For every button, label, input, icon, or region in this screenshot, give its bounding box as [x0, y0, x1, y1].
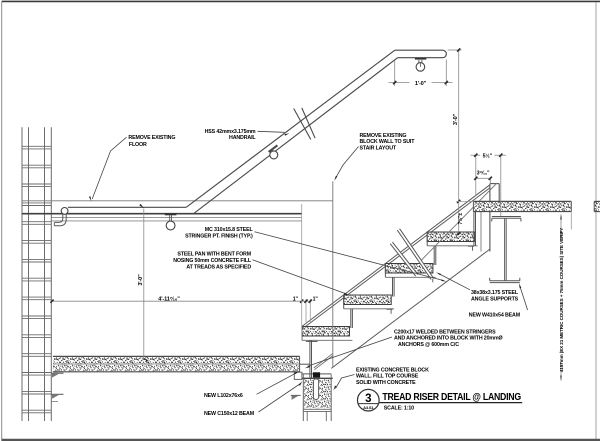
svg-text:1'-0": 1'-0" [415, 81, 427, 87]
svg-text:SOLID WITH CONCRETE: SOLID WITH CONCRETE [356, 380, 416, 386]
svg-text:AT TREADS AS SPECIFIED: AT TREADS AS SPECIFIED [186, 264, 251, 270]
svg-text:STRINGER PT. FINISH (TYP.): STRINGER PT. FINISH (TYP.) [185, 233, 253, 239]
svg-text:MC 310x15.8 STEEL: MC 310x15.8 STEEL [205, 227, 254, 233]
svg-text:3'-0": 3'-0" [138, 274, 144, 286]
svg-text:1": 1" [293, 297, 299, 303]
svg-text:ANGLE SUPPORTS: ANGLE SUPPORTS [471, 297, 519, 303]
svg-text:STEEL PAN WITH BENT FORM: STEEL PAN WITH BENT FORM [177, 252, 251, 258]
svg-text:REMOVE EXISTING: REMOVE EXISTING [360, 133, 407, 139]
svg-text:FLOOR: FLOOR [129, 142, 147, 148]
svg-text:ANCHORS @ 600mm C/C: ANCHORS @ 600mm C/C [398, 342, 459, 348]
svg-text:HSS 42mmx3.175mm: HSS 42mmx3.175mm [205, 129, 256, 135]
svg-text:NEW C150x12 BEAM: NEW C150x12 BEAM [204, 411, 255, 417]
svg-text:1": 1" [313, 297, 319, 303]
svg-text:HANDRAIL: HANDRAIL [229, 135, 256, 141]
svg-text:WALL. FILL TOP COURSE: WALL. FILL TOP COURSE [356, 374, 419, 380]
svg-text:38x38x3.175 STEEL: 38x38x3.175 STEEL [471, 290, 519, 296]
svg-text:NEW L102x76x6: NEW L102x76x6 [204, 393, 243, 399]
svg-text:A3.S1: A3.S1 [363, 405, 374, 410]
svg-text:C200x17 WELDED BETWEEN STRINGE: C200x17 WELDED BETWEEN STRINGERS [394, 329, 496, 335]
svg-text:REMOVE EXISTING: REMOVE EXISTING [128, 135, 175, 141]
svg-text:3¹³⁄₁₆": 3¹³⁄₁₆" [477, 171, 490, 177]
svg-text:4157mm (EX 21 METRIC COURSES +: 4157mm (EX 21 METRIC COURSES + 75mm COUR… [559, 228, 564, 372]
svg-text:TREAD RISER DETAIL @ LANDING: TREAD RISER DETAIL @ LANDING [382, 392, 521, 403]
svg-text:BLOCK WALL TO SUIT: BLOCK WALL TO SUIT [360, 139, 416, 145]
svg-text:3'-0": 3'-0" [453, 113, 459, 125]
svg-text:NEW W410x54 BEAM: NEW W410x54 BEAM [469, 313, 521, 319]
svg-text:5½": 5½" [483, 152, 493, 159]
svg-text:NOSING 50mm CONCRETE FILL: NOSING 50mm CONCRETE FILL [173, 258, 252, 264]
svg-text:SCALE: 1:10: SCALE: 1:10 [384, 405, 414, 411]
svg-text:AND ANCHORED INTO BLOCK WITH 2: AND ANCHORED INTO BLOCK WITH 20mmØ [394, 336, 503, 342]
svg-text:STAIR LAYOUT: STAIR LAYOUT [360, 146, 397, 152]
svg-text:4'-11⁷⁄₁₆": 4'-11⁷⁄₁₆" [158, 296, 180, 302]
svg-text:EXISTING CONCRETE BLOCK: EXISTING CONCRETE BLOCK [356, 367, 429, 373]
svg-text:7½"±: 7½"± [457, 213, 464, 225]
